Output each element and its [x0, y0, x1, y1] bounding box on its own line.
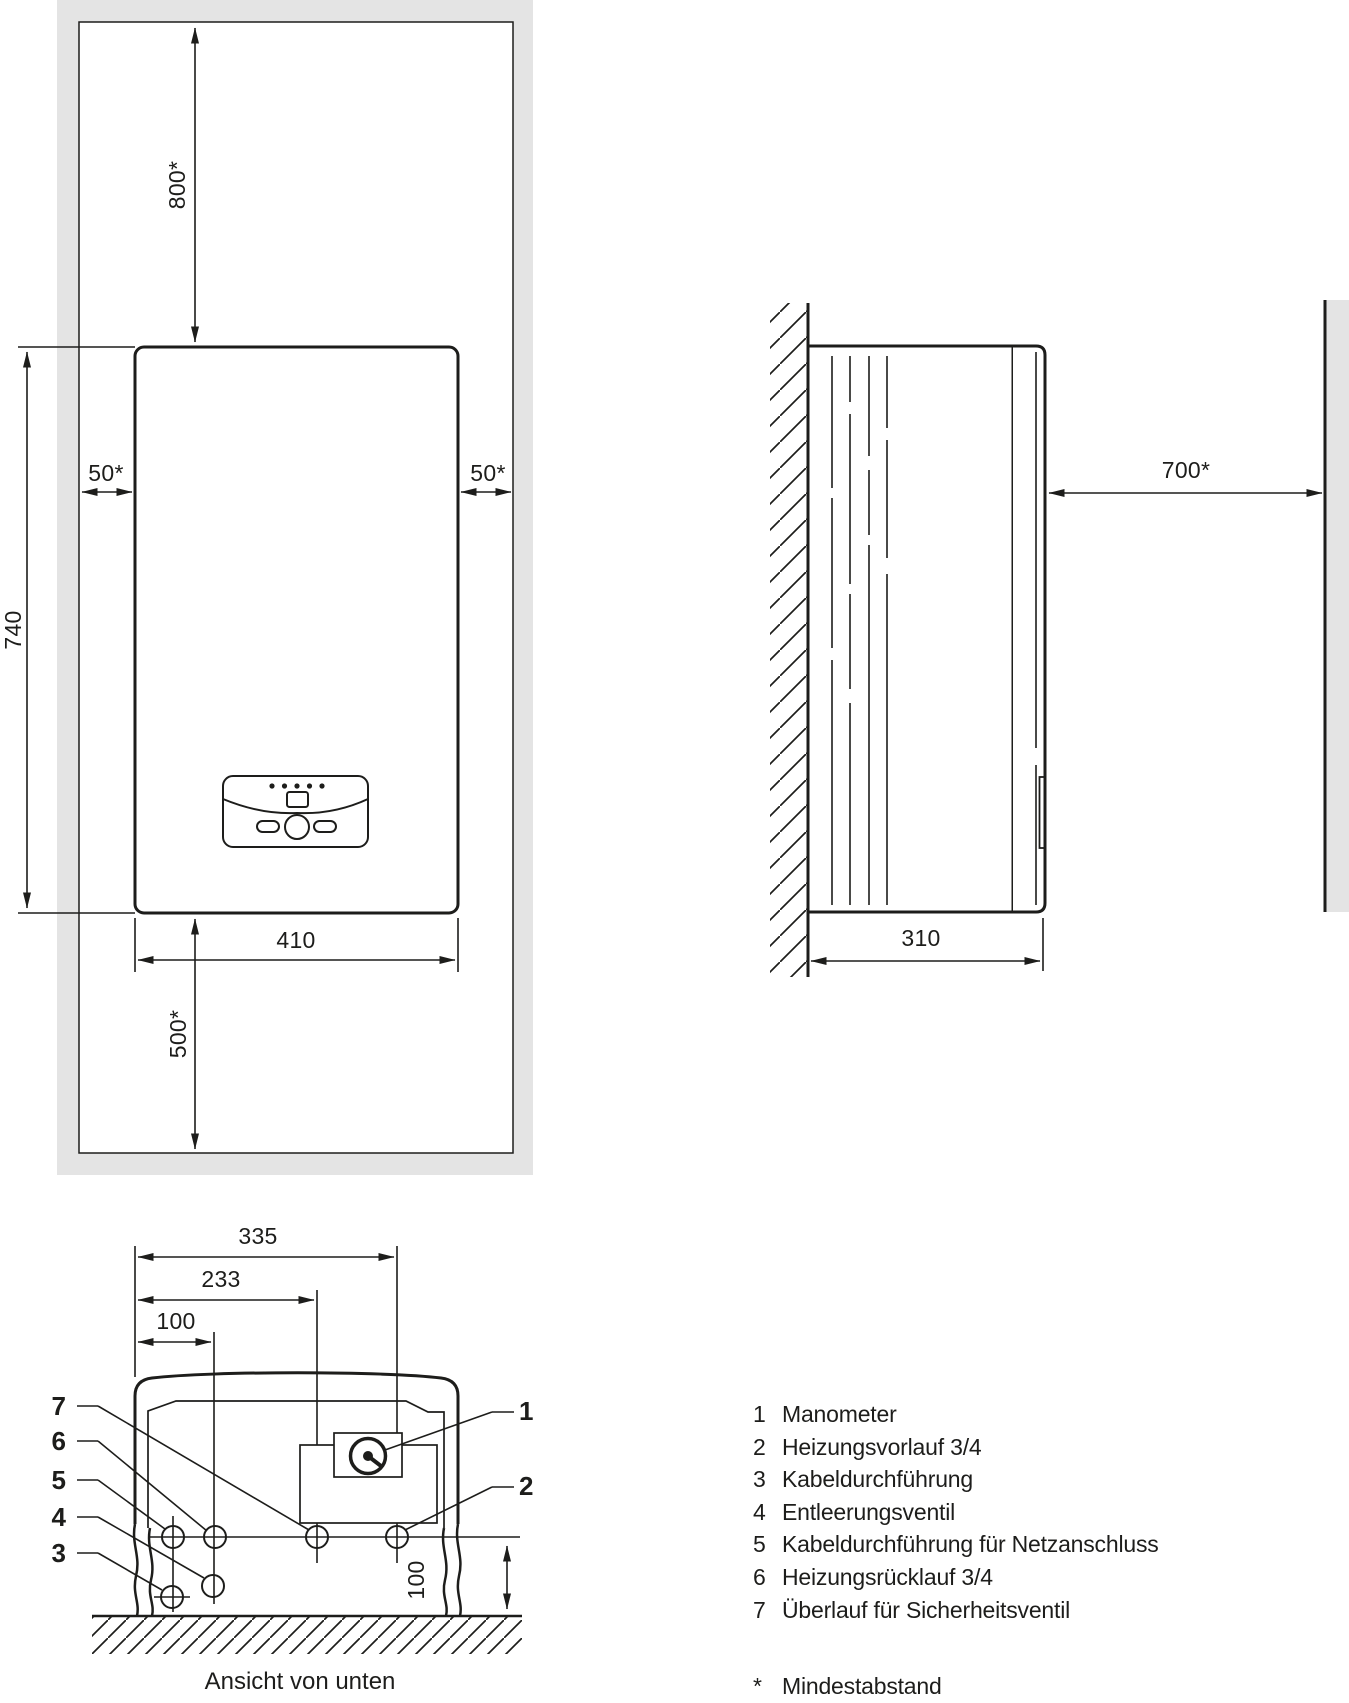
- opposite-wall-band: [1325, 300, 1349, 912]
- dim-label-740: 740: [0, 610, 26, 649]
- legend-item: 7 Überlauf für Sicherheitsventil: [753, 1594, 1159, 1627]
- dim-label-335: 335: [238, 1223, 277, 1249]
- dim-label-410: 410: [276, 927, 315, 953]
- legend-item-number: 7: [753, 1594, 775, 1627]
- legend-item: 2 Heizungsvorlauf 3/4: [753, 1431, 1159, 1464]
- legend-item-number: 4: [753, 1496, 775, 1529]
- legend-item: 1 Manometer: [753, 1398, 1159, 1431]
- boiler-front-outline: [135, 347, 458, 913]
- legend-item-label: Heizungsvorlauf 3/4: [782, 1431, 981, 1464]
- dim-label-100-height: 100: [403, 1560, 429, 1599]
- callout-2: 2: [519, 1471, 533, 1501]
- legend-item: 5 Kabeldurchführung für Netzanschluss: [753, 1528, 1159, 1561]
- legend-item-label: Kabeldurchführung für Netzanschluss: [782, 1528, 1159, 1561]
- legend-item-number: 5: [753, 1528, 775, 1561]
- dim-label-310: 310: [901, 925, 940, 951]
- ground-hatch: [92, 1617, 522, 1654]
- legend-item-label: Kabeldurchführung: [782, 1463, 973, 1496]
- callout-1: 1: [519, 1396, 533, 1426]
- legend-item-label: Überlauf für Sicherheitsventil: [782, 1594, 1070, 1627]
- bottom-centerlines: [135, 1246, 397, 1612]
- legend-item-label: Manometer: [782, 1398, 897, 1431]
- callout-7: 7: [52, 1391, 66, 1421]
- connection-ports: [161, 1526, 408, 1608]
- manometer-assembly: [300, 1433, 437, 1523]
- side-view: 700* 310: [770, 300, 1349, 977]
- callout-4: 4: [52, 1502, 67, 1532]
- legend-item-label: Heizungsrücklauf 3/4: [782, 1561, 993, 1594]
- legend-item-number: 6: [753, 1561, 775, 1594]
- dim-label-700: 700*: [1162, 457, 1211, 483]
- legend-item: 6 Heizungsrücklauf 3/4: [753, 1561, 1159, 1594]
- dim-label-50-left: 50*: [88, 460, 123, 486]
- installation-drawing: 800* 50* 50* 740 410 500* 700* 310: [0, 0, 1349, 1698]
- legend-item-number: 1: [753, 1398, 775, 1431]
- callout-6: 6: [52, 1426, 66, 1456]
- callout-leaders: [77, 1406, 514, 1590]
- legend: 1 Manometer 2 Heizungsvorlauf 3/4 3 Kabe…: [753, 1398, 1159, 1703]
- dim-label-800: 800*: [164, 161, 190, 210]
- legend-item: 4 Entleerungsventil: [753, 1496, 1159, 1529]
- bottom-view: 335 233 100: [52, 1223, 534, 1654]
- legend-item-number: 3: [753, 1463, 775, 1496]
- port-entleerungsventil: [202, 1575, 224, 1597]
- callout-3: 3: [52, 1538, 66, 1568]
- wall-hatch: [770, 303, 808, 977]
- dim-label-100: 100: [156, 1308, 195, 1334]
- boiler-side-body: [808, 346, 1013, 912]
- bottom-view-caption: Ansicht von unten: [110, 1668, 490, 1696]
- callout-5: 5: [52, 1465, 66, 1495]
- dim-label-500: 500*: [165, 1010, 191, 1059]
- dim-label-50-right: 50*: [470, 460, 505, 486]
- legend-item-label: Entleerungsventil: [782, 1496, 955, 1529]
- dim-label-233: 233: [201, 1266, 240, 1292]
- legend-item-number: 2: [753, 1431, 775, 1464]
- front-view: 800* 50* 50* 740 410 500*: [0, 0, 533, 1175]
- legend-item: 3 Kabeldurchführung: [753, 1463, 1159, 1496]
